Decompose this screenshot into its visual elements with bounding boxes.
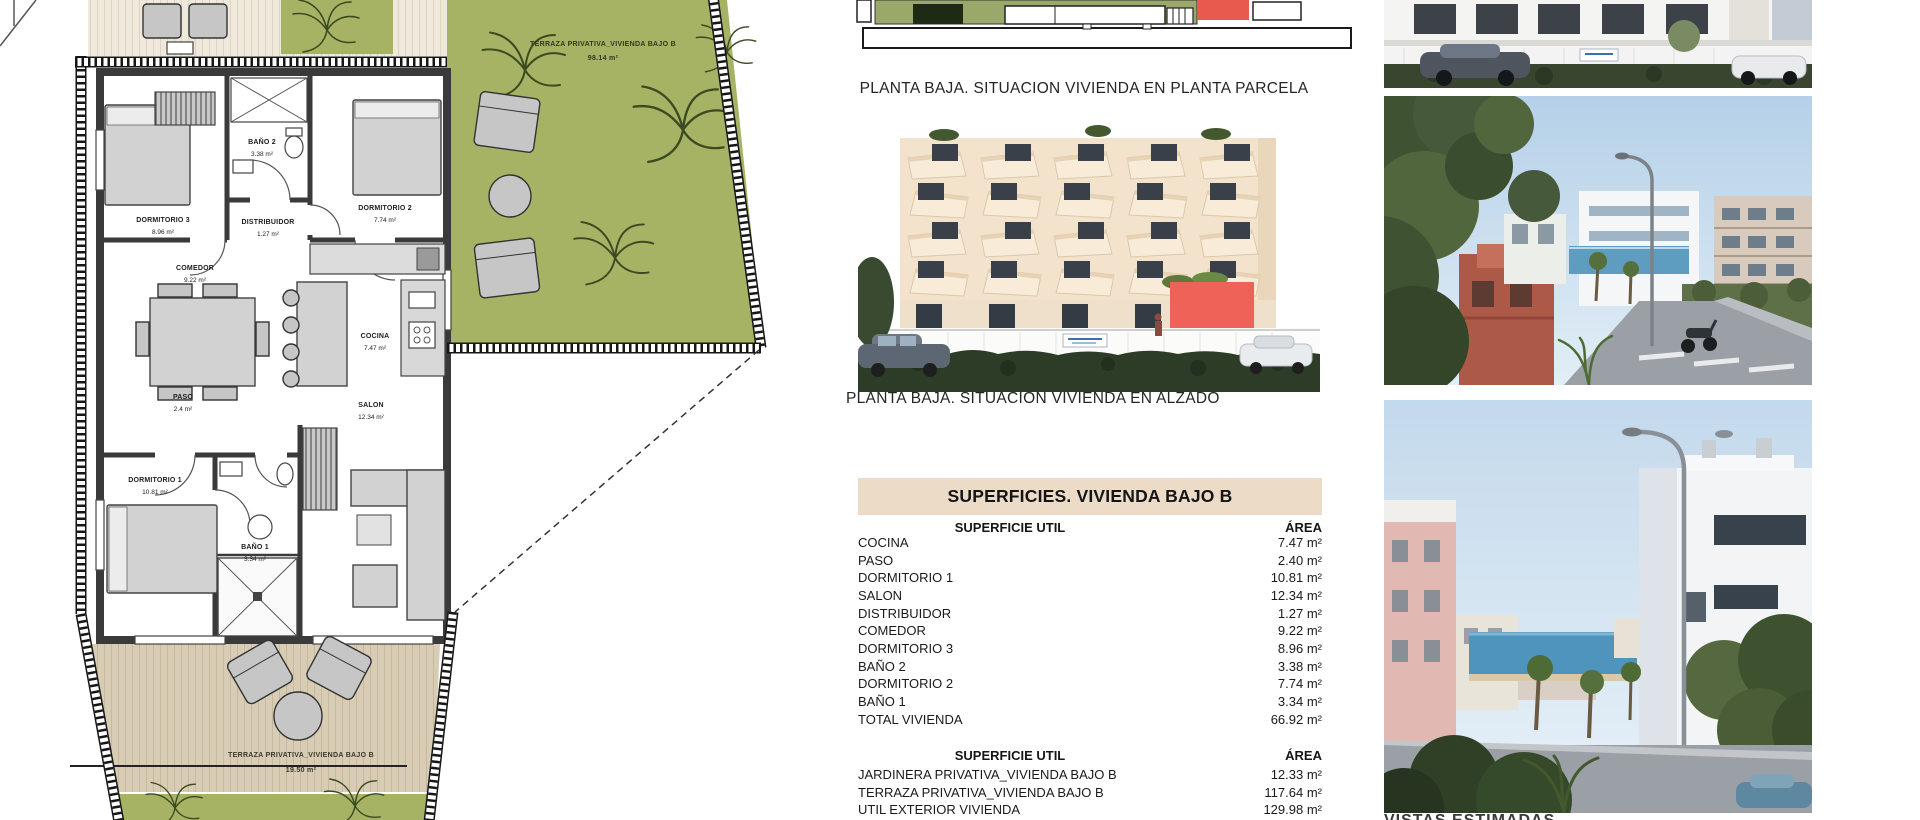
terrace-bottom-label: TERRAZA PRIVATIVA_VIVIENDA BAJO B [228,752,374,759]
floorplan-drawing: TERRAZA PRIVATIVA_VIVIENDA BAJO B 98.14 … [55,0,800,820]
svg-text:7.74 m²: 7.74 m² [374,217,397,224]
table-row: COCINA7.47 m² [846,534,1322,552]
room-label: COMEDOR [176,265,214,272]
table-row: UTIL EXTERIOR VIVIENDA129.98 m² [846,801,1322,819]
table-row-total: TOTAL VIVIENDA66.92 m² [846,711,1322,729]
photo-street-view-sea [1384,96,1812,385]
table-row: COMEDOR9.22 m² [846,622,1322,640]
table-row: BAÑO 13.34 m² [846,693,1322,711]
terrace-top-area: 98.14 m² [588,55,619,62]
room-label: DORMITORIO 1 [128,477,182,484]
room-label: SALON [358,402,384,409]
svg-text:8.96 m²: 8.96 m² [152,229,175,236]
column-header-area: ÁREA [1202,520,1322,535]
svg-text:10.81 m²: 10.81 m² [142,489,168,496]
room-label: PASO [173,394,193,401]
table-row: JARDINERA PRIVATIVA_VIVIENDA BAJO B12.33… [846,766,1322,784]
siteplan-strip [855,0,1360,58]
table-row: DORMITORIO 27.74 m² [846,675,1322,693]
svg-text:1.27 m²: 1.27 m² [257,231,280,238]
plan-sheet: TERRAZA PRIVATIVA_VIVIENDA BAJO B 98.14 … [0,0,1920,820]
fence-sign [1063,334,1107,347]
column-header-superficie: SUPERFICIE UTIL [860,520,1160,535]
svg-text:2.4 m²: 2.4 m² [174,406,193,413]
room-label: DORMITORIO 2 [358,205,412,212]
room-label: BAÑO 2 [248,137,276,146]
room-label: COCINA [361,333,390,340]
column-header-superficie-2: SUPERFICIE UTIL [860,748,1160,763]
garden-patch-top [281,0,393,54]
caption-vistas: VISTAS ESTIMADAS [1384,812,1814,820]
table-row: TERRAZA PRIVATIVA_VIVIENDA BAJO B117.64 … [846,784,1322,802]
table-row: DORMITORIO 38.96 m² [846,640,1322,658]
siteplan-unit-highlight [1197,0,1249,20]
svg-text:7.47 m²: 7.47 m² [364,345,387,352]
table-row: SALON12.34 m² [846,587,1322,605]
garden-strip-bottom [113,794,431,820]
photo-villas-render [1384,0,1812,88]
room-label: BAÑO 1 [241,542,269,551]
table-row: DORMITORIO 110.81 m² [846,569,1322,587]
room-label: DISTRIBUIDOR [242,219,295,226]
surfaces-table: SUPERFICIES. VIVIENDA BAJO B SUPERFICIE … [846,476,1322,820]
svg-text:3.34 m²: 3.34 m² [244,556,267,563]
table-row: BAÑO 23.38 m² [846,658,1322,676]
table-row: DISTRIBUIDOR1.27 m² [846,605,1322,623]
table-row: PASO2.40 m² [846,552,1322,570]
terrace-strip-top [88,0,447,56]
svg-text:3.38 m²: 3.38 m² [251,151,274,158]
room-label: DORMITORIO 3 [136,217,190,224]
caption-planta-alzado: PLANTA BAJA. SITUACION VIVIENDA EN ALZAD… [846,390,1220,408]
caption-planta-parcela: PLANTA BAJA. SITUACION VIVIENDA EN PLANT… [846,80,1322,98]
column-header-area-2: ÁREA [1202,748,1322,763]
terrace-top-label: TERRAZA PRIVATIVA_VIVIENDA BAJO B [530,41,676,48]
svg-text:9.22 m²: 9.22 m² [184,277,207,284]
elevation-render [858,112,1320,392]
svg-text:12.34 m²: 12.34 m² [358,414,384,421]
terrace-bottom-area: 19.50 m² [286,767,317,774]
photo-white-building-sea [1384,400,1812,813]
elevation-unit-highlight [1170,282,1254,330]
surfaces-table-title: SUPERFICIES. VIVIENDA BAJO B [858,478,1322,515]
